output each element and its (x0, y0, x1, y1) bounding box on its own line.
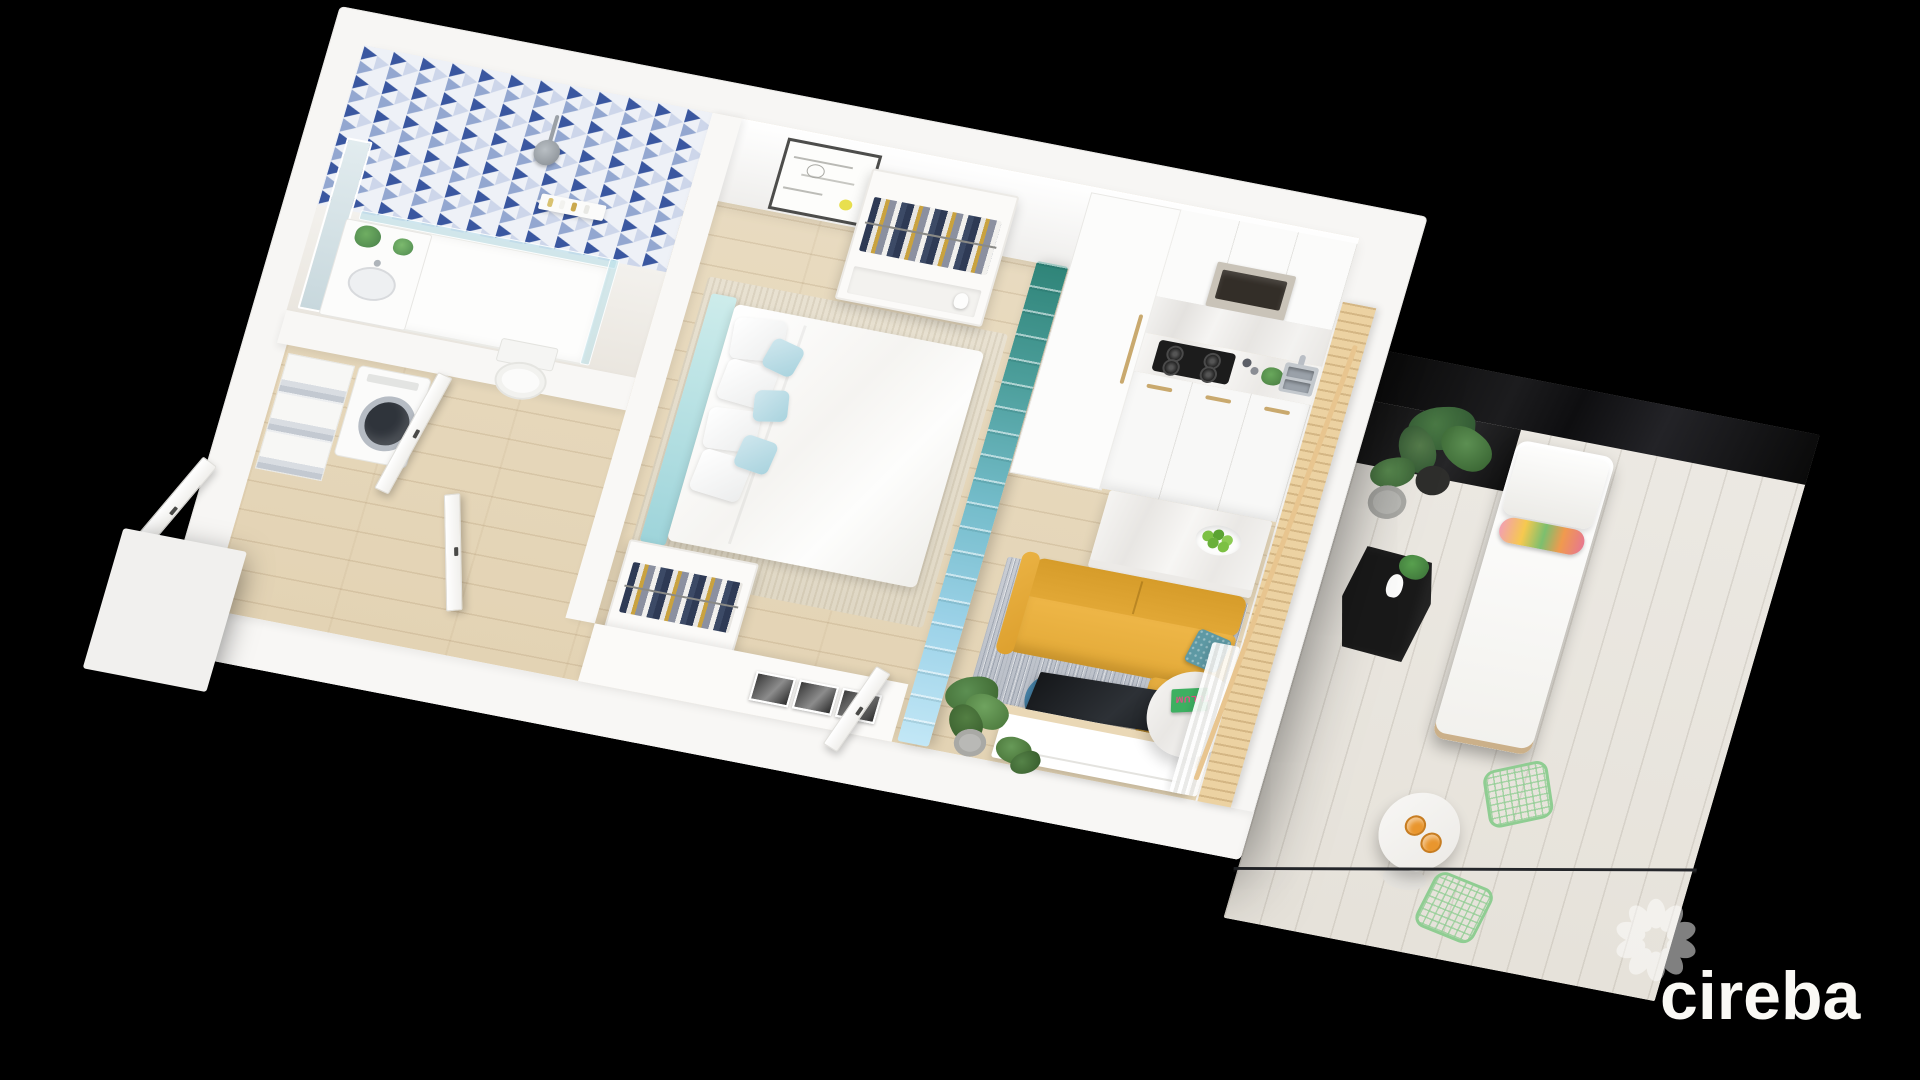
glass-panel-edge (1233, 867, 1696, 871)
sink-faucet (373, 259, 382, 267)
toiletry-bottle (570, 202, 577, 212)
washer-control-panel (366, 374, 419, 392)
green-wire-chair (1482, 759, 1555, 830)
orange-drink (1418, 831, 1444, 855)
exterior-wall-stub (83, 528, 247, 692)
vanity-plant (352, 224, 384, 250)
door-handle (169, 506, 178, 515)
bw-photo-frame (792, 679, 840, 715)
bw-photo-frame (749, 671, 797, 707)
round-patio-table (1369, 786, 1470, 878)
lime (1216, 541, 1230, 554)
bathroom-sink (344, 263, 401, 305)
accent-pillow (752, 390, 790, 422)
floor-plan-scene: TULUM (0, 0, 1920, 1080)
vanity-plant (391, 237, 415, 257)
toiletry-bottle (547, 198, 554, 208)
cabinet-handle (1264, 406, 1291, 415)
toiletry-bottle (558, 200, 565, 210)
lime-bowl (1192, 522, 1245, 560)
closet-door (444, 493, 463, 611)
microwave-window (1215, 269, 1288, 310)
door-handle (454, 547, 458, 556)
door-handle (412, 429, 420, 439)
art-line (783, 186, 823, 195)
cabinet-handle (1146, 384, 1173, 393)
cireba-logo-text: cireba (1660, 962, 1860, 1030)
art-yellow-dot (838, 198, 854, 211)
door-handle (855, 707, 864, 717)
sink-basin (1286, 366, 1314, 381)
cabinet-handle (1205, 395, 1232, 404)
sink-basin (1282, 379, 1310, 394)
cushion-seam (1132, 581, 1143, 614)
chaise-lounge (1431, 439, 1616, 756)
plant-pot (1364, 482, 1411, 522)
toiletry-bottle (583, 205, 590, 215)
apartment-footprint: TULUM (152, 6, 1427, 860)
